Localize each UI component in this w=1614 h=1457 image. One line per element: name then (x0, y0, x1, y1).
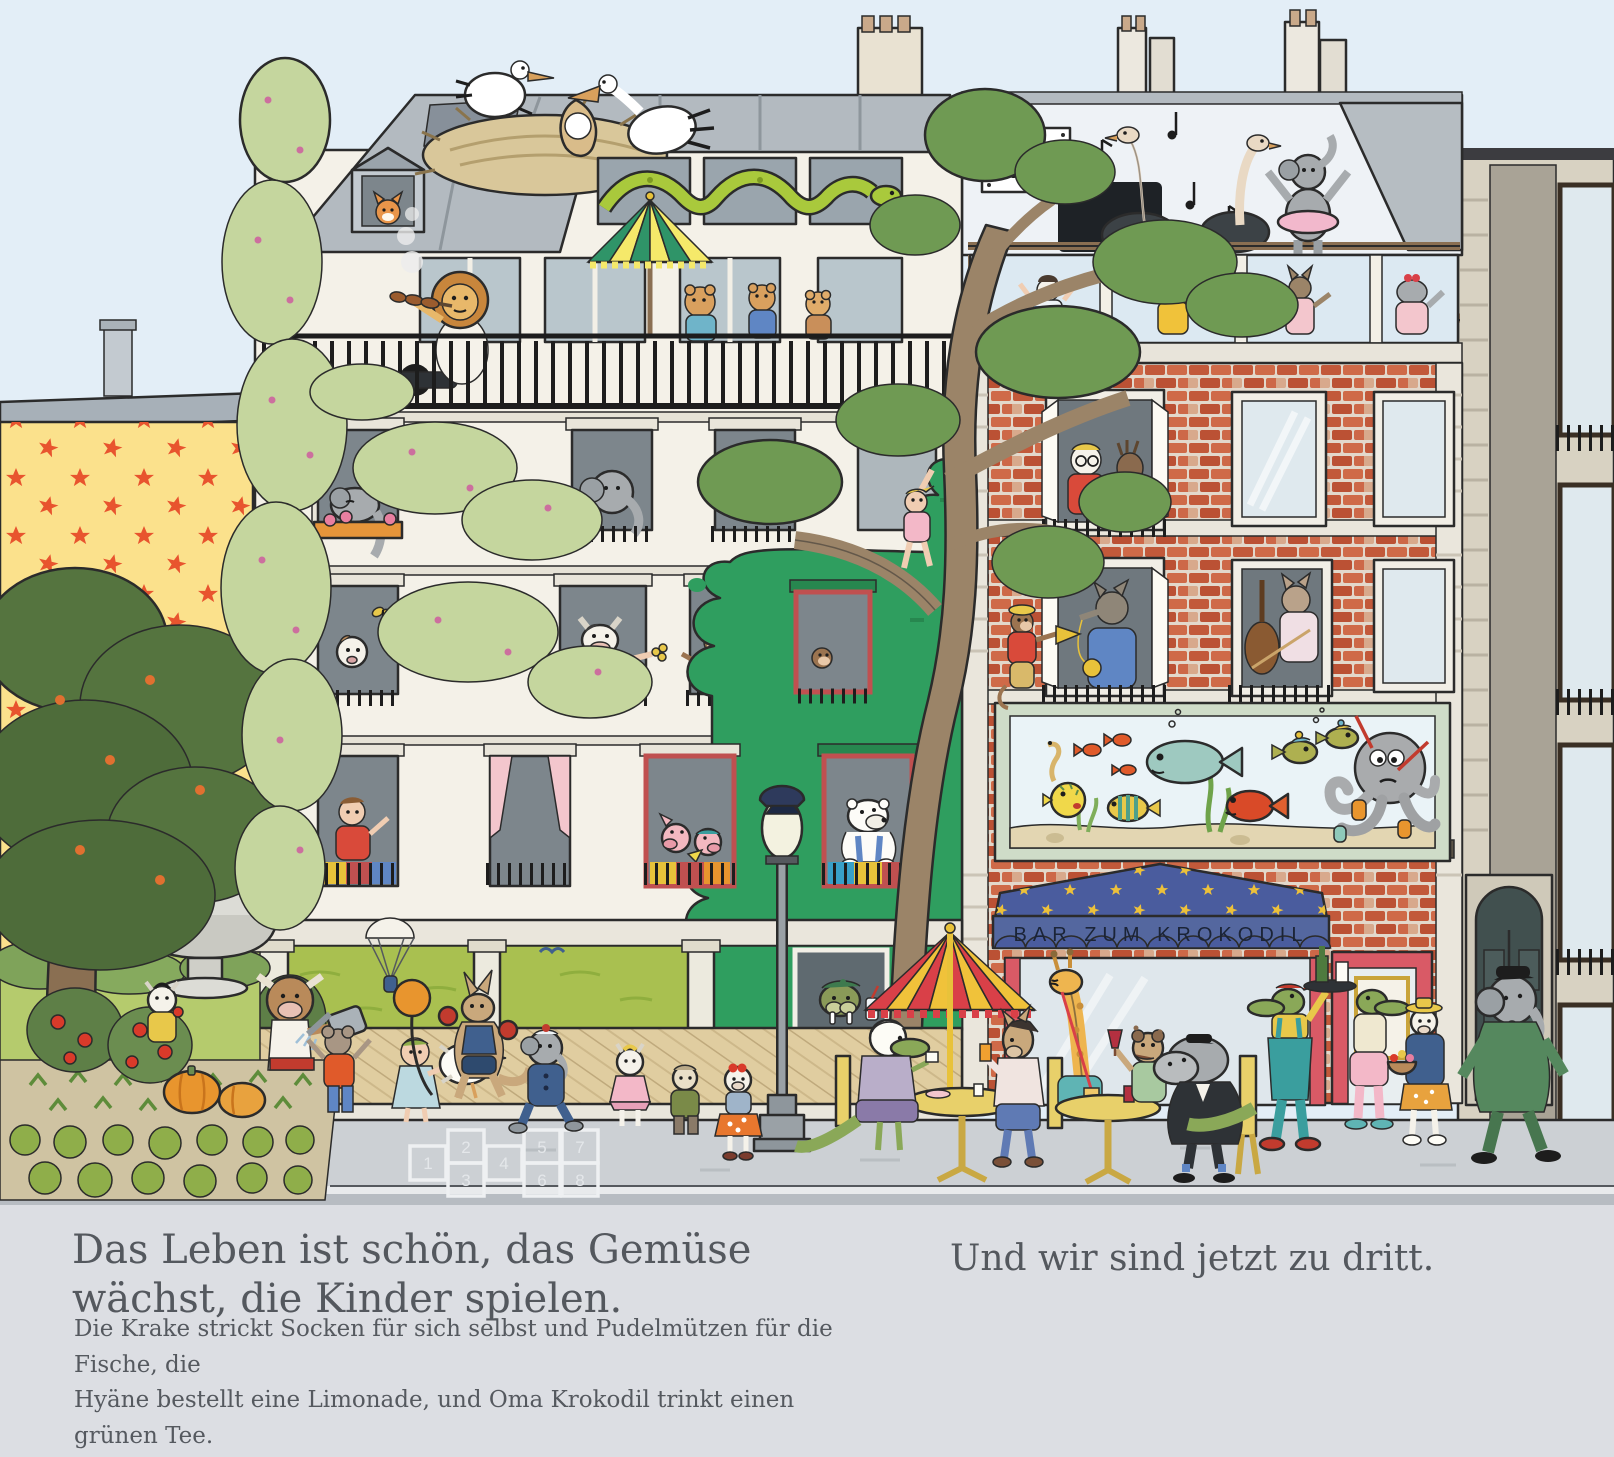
bar-awning-text: BAR ZUM KROKODIL (1014, 924, 1309, 946)
headline: Das Leben ist schön, das Gemüse wächst, … (72, 1226, 772, 1324)
svg-text:1: 1 (423, 1154, 432, 1173)
bears-at-table (685, 284, 831, 342)
background-window (1556, 485, 1614, 702)
svg-text:4: 4 (499, 1154, 508, 1173)
window-baby-monkey (790, 580, 876, 696)
body-line: Hyäne bestellt eine Limonade, und Oma Kr… (74, 1383, 834, 1454)
svg-text:8: 8 (575, 1171, 584, 1190)
body-text: Die Krake strickt Socken für sich selbst… (74, 1312, 834, 1457)
svg-text:7: 7 (575, 1138, 584, 1157)
plain-window (1374, 560, 1454, 692)
right-caption: Und wir sind jetzt zu dritt. (950, 1238, 1470, 1279)
colorful-balcony (314, 862, 402, 884)
svg-text:2: 2 (461, 1138, 470, 1157)
plain-window (1232, 392, 1326, 526)
punch-ball (394, 980, 430, 1016)
background-window (1556, 185, 1614, 438)
book-page: TANZ- KURSE (0, 0, 1614, 1457)
polar-bear (842, 799, 896, 869)
svg-text:6: 6 (537, 1171, 546, 1190)
police-cap (760, 786, 804, 806)
background-window (1556, 745, 1614, 962)
headline-line: Das Leben ist schön, das Gemüse (72, 1226, 772, 1275)
window-pink-curtains (484, 744, 576, 886)
window-pigs (640, 744, 740, 886)
aquarium-window (995, 703, 1450, 861)
cello-fox-window (1228, 560, 1336, 696)
colorful-balcony (644, 862, 738, 884)
svg-text:5: 5 (537, 1138, 546, 1157)
svg-text:3: 3 (461, 1171, 470, 1190)
plain-window (1374, 392, 1454, 526)
body-line: Die Krake strickt Socken für sich selbst… (74, 1312, 834, 1383)
